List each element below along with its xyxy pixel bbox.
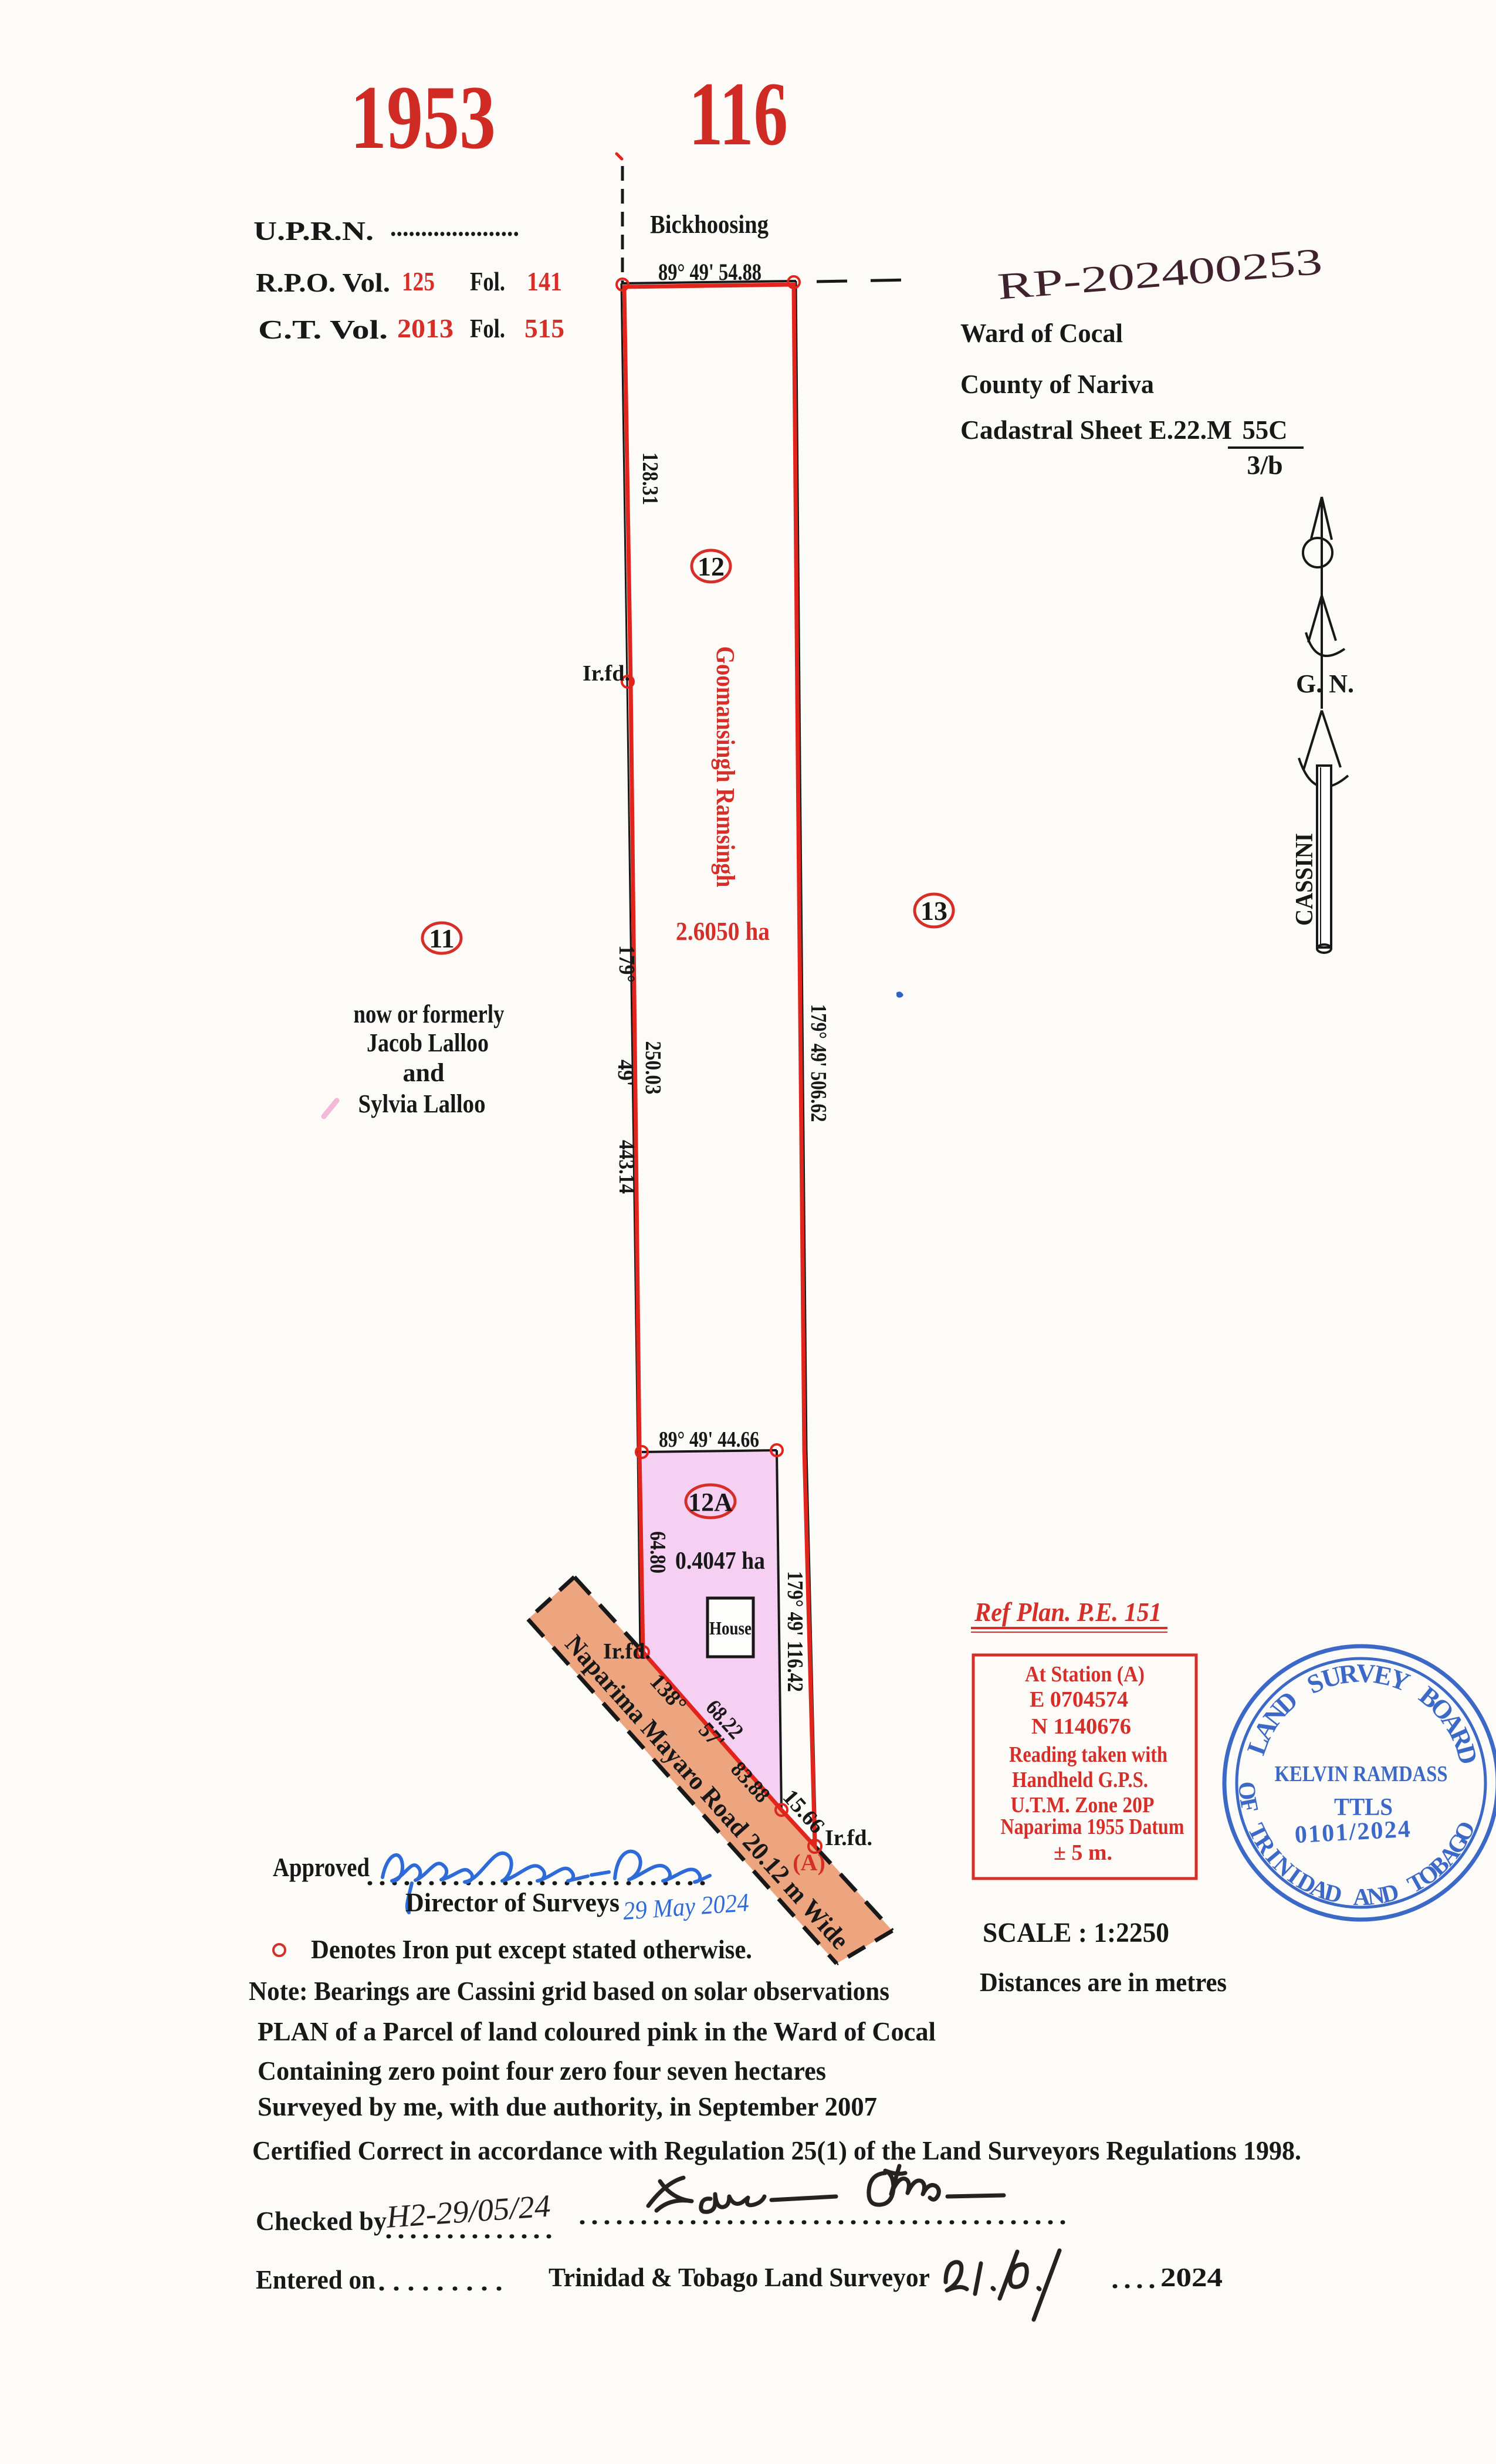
svg-text:Ref Plan. P.E. 151: Ref Plan. P.E. 151 — [974, 1597, 1162, 1627]
svg-text:443.14: 443.14 — [614, 1140, 639, 1194]
svg-text:CASSINI: CASSINI — [1291, 833, 1318, 926]
svg-text:G. N.: G. N. — [1296, 669, 1354, 698]
svg-text:13: 13 — [920, 896, 947, 926]
svg-text:179°: 179° — [614, 945, 639, 983]
svg-text:N 1140676: N 1140676 — [1031, 1714, 1131, 1739]
svg-text:2013: 2013 — [397, 313, 453, 343]
svg-text:128.31: 128.31 — [638, 452, 662, 505]
svg-text:SCALE : 1:2250: SCALE : 1:2250 — [983, 1917, 1169, 1948]
svg-text:12: 12 — [698, 551, 725, 581]
svg-text:Fol.: Fol. — [470, 313, 505, 343]
svg-text:Bickhoosing: Bickhoosing — [650, 210, 769, 239]
svg-text:Trinidad & Tobago Land Survey: Trinidad & Tobago Land Surveyor — [549, 2262, 930, 2292]
svg-text:± 5 m.: ± 5 m. — [1054, 1840, 1112, 1865]
svg-text:now or formerly: now or formerly — [354, 1000, 505, 1028]
svg-text:.....................: ..................... — [390, 212, 519, 242]
svg-text:PLAN of a Parcel of land colou: PLAN of a Parcel of land coloured pink i… — [258, 2016, 936, 2046]
svg-text:At Station (A): At Station (A) — [1025, 1662, 1145, 1687]
svg-text:Ir.fd.: Ir.fd. — [603, 1639, 651, 1664]
svg-text:U.T.M. Zone 20P: U.T.M. Zone 20P — [1011, 1793, 1155, 1817]
svg-text:Cadastral Sheet E.22.M: Cadastral Sheet E.22.M — [960, 415, 1232, 445]
svg-text:515: 515 — [524, 313, 564, 343]
svg-text:49': 49' — [613, 1060, 638, 1087]
svg-text:H2-29/05/24: H2-29/05/24 — [385, 2188, 552, 2235]
svg-text:0101/2024: 0101/2024 — [1294, 1816, 1411, 1849]
svg-text:Fol.: Fol. — [470, 266, 505, 296]
svg-text:Ward of Cocal: Ward of Cocal — [960, 318, 1123, 348]
svg-text:11: 11 — [429, 923, 454, 953]
svg-text:County of Nariva: County of Nariva — [960, 369, 1154, 399]
svg-text:179° 49' 506.62: 179° 49' 506.62 — [806, 1004, 831, 1122]
svg-text:Checked by: Checked by — [256, 2206, 387, 2236]
svg-text:141: 141 — [527, 266, 562, 296]
svg-text:Ir.fd.: Ir.fd. — [825, 1826, 872, 1850]
svg-text:Naparima 1955 Datum: Naparima 1955 Datum — [1001, 1815, 1184, 1839]
svg-text:Note: Bearings are Cassini gri: Note: Bearings are Cassini grid based on… — [249, 1976, 889, 2006]
svg-text:2024: 2024 — [1160, 2262, 1223, 2292]
svg-text:116: 116 — [689, 63, 788, 164]
svg-text:KELVIN RAMDASS: KELVIN RAMDASS — [1275, 1762, 1448, 1786]
svg-text:Denotes Iron put except stated: Denotes Iron put except stated otherwise… — [311, 1934, 752, 1964]
svg-text:Director of Surveys: Director of Surveys — [405, 1887, 620, 1917]
svg-text:Ir.fd.: Ir.fd. — [583, 661, 630, 686]
svg-text:29 May 2024: 29 May 2024 — [622, 1888, 750, 1925]
svg-text:125: 125 — [402, 266, 435, 296]
svg-text:Jacob Lalloo: Jacob Lalloo — [367, 1028, 489, 1057]
svg-text:RP-202400253: RP-202400253 — [996, 241, 1324, 307]
svg-text:250.03: 250.03 — [641, 1041, 665, 1095]
svg-text:12A: 12A — [688, 1488, 733, 1517]
svg-text:House: House — [709, 1617, 752, 1639]
svg-text:Goomansingh Ramsingh: Goomansingh Ramsingh — [711, 647, 740, 888]
svg-text:Distances are in metres: Distances are in metres — [980, 1967, 1227, 1997]
svg-text:179° 49' 116.42: 179° 49' 116.42 — [783, 1571, 807, 1692]
svg-text:64.80: 64.80 — [645, 1531, 670, 1573]
svg-text:Containing zero point four zer: Containing zero point four zero four sev… — [258, 2056, 826, 2086]
svg-text:Surveyed by me, with due autho: Surveyed by me, with due authority, in S… — [258, 2091, 877, 2121]
svg-text:89° 49' 44.66: 89° 49' 44.66 — [659, 1427, 759, 1452]
svg-text:0.4047 ha: 0.4047 ha — [675, 1548, 765, 1575]
svg-text:U.P.R.N.: U.P.R.N. — [253, 216, 374, 246]
svg-text:Reading taken with: Reading taken with — [1009, 1742, 1167, 1767]
svg-text:(A): (A) — [793, 1849, 825, 1876]
svg-text:Entered on: Entered on — [256, 2265, 375, 2294]
svg-text:Certified Correct in accordanc: Certified Correct in accordance with Reg… — [252, 2135, 1301, 2165]
svg-text:Sylvia Lalloo: Sylvia Lalloo — [358, 1089, 486, 1118]
svg-text:Handheld G.P.S.: Handheld G.P.S. — [1012, 1768, 1148, 1792]
svg-text:89° 49' 54.88: 89° 49' 54.88 — [658, 259, 761, 285]
svg-text:and: and — [403, 1058, 445, 1087]
svg-text:2.6050 ha: 2.6050 ha — [676, 917, 770, 946]
svg-text:1953: 1953 — [350, 67, 496, 168]
svg-text:Approved: Approved — [273, 1852, 370, 1882]
svg-text:E 0704574: E 0704574 — [1030, 1687, 1128, 1712]
svg-text:C.T. Vol.: C.T. Vol. — [258, 314, 388, 344]
svg-text:R.P.O. Vol.: R.P.O. Vol. — [256, 268, 390, 297]
svg-text:55C: 55C — [1243, 415, 1288, 445]
svg-text:3/b: 3/b — [1247, 450, 1282, 480]
